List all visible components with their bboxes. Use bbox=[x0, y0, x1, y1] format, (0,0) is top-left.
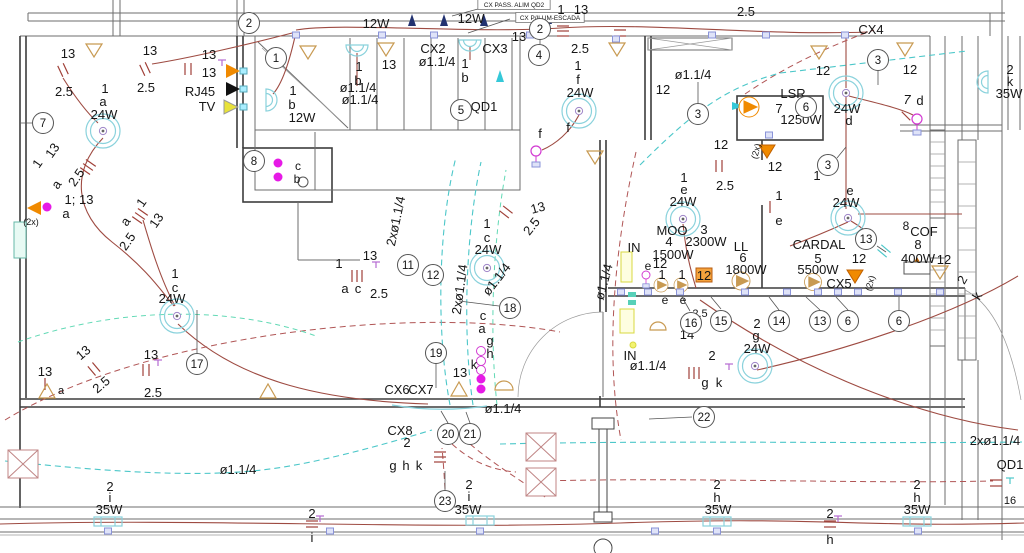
circuit-number-text: 21 bbox=[464, 429, 477, 441]
label: 13 bbox=[382, 57, 396, 72]
circuit-number: 14 bbox=[769, 311, 790, 332]
circuit-number-text: 16 bbox=[685, 318, 698, 330]
label: a bbox=[117, 214, 134, 229]
label: k bbox=[416, 458, 423, 473]
label: 7 bbox=[903, 92, 911, 107]
label: 12W bbox=[289, 110, 316, 125]
label: 2.5 bbox=[571, 41, 589, 56]
label: 35W bbox=[705, 502, 732, 517]
label: 2 bbox=[708, 348, 715, 363]
label: e bbox=[662, 293, 669, 307]
label: b bbox=[294, 172, 301, 186]
label: f bbox=[566, 120, 570, 135]
label: 2.5 bbox=[89, 373, 112, 396]
label: h bbox=[826, 532, 833, 547]
label: 2 bbox=[826, 506, 833, 521]
label: 24W bbox=[670, 194, 697, 209]
label: 24W bbox=[159, 291, 186, 306]
label: 2 bbox=[403, 435, 410, 450]
label: QD1 bbox=[471, 99, 498, 114]
magenta-point-icon bbox=[43, 159, 486, 394]
label: 35W bbox=[455, 502, 482, 517]
label: 24W bbox=[833, 195, 860, 210]
circuit-number: 17 bbox=[187, 354, 208, 375]
circuit-number-text: 2 bbox=[537, 24, 543, 36]
circuit-number-text: 19 bbox=[430, 348, 443, 360]
rj45-outlet bbox=[240, 86, 247, 92]
circuit-number: 11 bbox=[398, 255, 419, 276]
circuit-number: 16 bbox=[681, 313, 702, 334]
label: 12 bbox=[852, 251, 866, 266]
label: 12 bbox=[816, 63, 830, 78]
label: 13 bbox=[202, 47, 216, 62]
label: k bbox=[716, 375, 723, 390]
label: 13 bbox=[144, 347, 158, 362]
label: 12 bbox=[656, 82, 670, 97]
circuit-number-text: 18 bbox=[504, 303, 517, 315]
label: 400W bbox=[901, 251, 936, 266]
label: RJ45 bbox=[185, 84, 215, 99]
label: 1 bbox=[483, 216, 490, 231]
circuit-number-text: 6 bbox=[896, 316, 902, 328]
circuit-number-text: 5 bbox=[458, 105, 464, 117]
label: IN bbox=[628, 240, 641, 255]
circuit-number: 13 bbox=[810, 311, 831, 332]
label: CARDAL bbox=[793, 237, 846, 252]
circuit-number: 6 bbox=[796, 97, 817, 118]
circuit-number-text: 15 bbox=[715, 316, 728, 328]
label: TV bbox=[199, 99, 216, 114]
label: 13 bbox=[453, 365, 467, 380]
label: 24W bbox=[744, 341, 771, 356]
circuit-number: 13 bbox=[856, 229, 877, 250]
label: 13 bbox=[73, 342, 94, 363]
label: c bbox=[355, 281, 362, 296]
circuit-number: 7 bbox=[33, 113, 54, 134]
label: 2.5 bbox=[737, 4, 755, 19]
circuit-number: 3 bbox=[688, 104, 709, 125]
label: d bbox=[845, 113, 852, 128]
label: 35W bbox=[96, 502, 123, 517]
label: 13 bbox=[61, 46, 75, 61]
label: CX6 bbox=[384, 382, 409, 397]
label: 24W bbox=[475, 242, 502, 257]
label: 1 bbox=[171, 266, 178, 281]
circuit-number: 21 bbox=[460, 424, 481, 445]
label: e bbox=[775, 213, 782, 228]
circuit-number-text: 1 bbox=[273, 53, 279, 65]
label: i bbox=[311, 530, 314, 545]
label: ø1.1/4 bbox=[419, 54, 456, 69]
label: QD1 bbox=[997, 457, 1024, 472]
label: 2.5 bbox=[520, 214, 543, 237]
label: 13 bbox=[363, 248, 377, 263]
circuit-number: 15 bbox=[711, 311, 732, 332]
circuit-number: 2 bbox=[530, 19, 551, 40]
label: 1 bbox=[289, 83, 296, 98]
label: h bbox=[486, 346, 493, 361]
label: 13 bbox=[146, 210, 167, 230]
circuit-number: 6 bbox=[889, 311, 910, 332]
label: CX7 bbox=[408, 382, 433, 397]
label: CX3 bbox=[482, 41, 507, 56]
symbols bbox=[8, 12, 1014, 553]
label: 2.5 bbox=[55, 84, 73, 99]
label: ø1.1/4 bbox=[220, 462, 257, 477]
floor-plan-screenshot: CX PASS. ALIM QD2CX P/ILUM-ESCADA 2.5CX4… bbox=[0, 0, 1024, 553]
label: 2.5 bbox=[116, 230, 139, 253]
labels: 2.5CX412W12W11313132.52.51313RJ45TV1a24W… bbox=[23, 2, 1023, 547]
circuit-number-text: 3 bbox=[875, 55, 881, 67]
label: a bbox=[62, 206, 70, 221]
label: (2x) bbox=[863, 274, 877, 292]
circuit-number-text: 2 bbox=[246, 18, 252, 30]
circuit-number-text: 23 bbox=[439, 496, 452, 508]
label: 12 bbox=[697, 268, 711, 283]
circuit-number: 22 bbox=[694, 407, 715, 428]
label: 13 bbox=[38, 364, 52, 379]
label: g bbox=[701, 375, 708, 390]
label: 1 bbox=[775, 188, 782, 203]
label: (2x) bbox=[23, 217, 39, 227]
label: CX4 bbox=[858, 22, 883, 37]
label: 2xø1.1/4 bbox=[970, 433, 1021, 448]
label: 13 bbox=[202, 65, 216, 80]
label: 12 bbox=[714, 137, 728, 152]
label: 1 bbox=[678, 267, 685, 282]
circuit-number-text: 3 bbox=[695, 109, 701, 121]
label: 1 bbox=[461, 56, 468, 71]
circuit-number-text: 6 bbox=[845, 316, 851, 328]
circuit-number-text: 6 bbox=[803, 102, 809, 114]
label: 1 bbox=[29, 156, 45, 171]
label: 35W bbox=[996, 86, 1023, 101]
label: 13 bbox=[574, 2, 588, 17]
callout-box: CX PASS. ALIM QD2 bbox=[478, 0, 550, 10]
ceiling-light-icon bbox=[86, 76, 865, 383]
label: 1 bbox=[557, 2, 564, 17]
label: b bbox=[461, 70, 468, 85]
label: ø1.1/4 bbox=[485, 401, 522, 416]
circuit-number: 23 bbox=[435, 491, 456, 512]
label: 1; 13 bbox=[65, 192, 94, 207]
circuit-number: 2 bbox=[239, 13, 260, 34]
label: 12W bbox=[363, 16, 390, 31]
label: 24W bbox=[567, 85, 594, 100]
circuit-number: 4 bbox=[529, 45, 550, 66]
label: 1800W bbox=[725, 262, 767, 277]
circuit-number: 1 bbox=[266, 48, 287, 69]
label: 1 bbox=[335, 256, 342, 271]
circuit-number-text: 4 bbox=[536, 50, 543, 62]
label: 12 bbox=[768, 159, 782, 174]
label: ø1.1/4 bbox=[630, 358, 667, 373]
label: 1 bbox=[133, 195, 149, 210]
tel-outlet bbox=[240, 68, 247, 74]
label: 13 bbox=[512, 29, 526, 44]
label: e bbox=[680, 293, 687, 307]
label: (2x) bbox=[749, 142, 763, 160]
label: 35W bbox=[904, 502, 931, 517]
circuit-number-text: 12 bbox=[427, 270, 440, 282]
label: 5500W bbox=[797, 262, 839, 277]
label: 16 bbox=[1004, 495, 1016, 507]
circuit-number: 8 bbox=[244, 151, 265, 172]
label: 2.5 bbox=[370, 286, 388, 301]
callout-text: CX P/ILUM-ESCADA bbox=[520, 15, 581, 22]
circuit-number-text: 14 bbox=[773, 316, 786, 328]
circuit-number-text: 8 bbox=[251, 156, 257, 168]
label: 13 bbox=[143, 43, 157, 58]
label: a bbox=[58, 385, 65, 397]
label: d bbox=[916, 93, 923, 108]
circuit-number: 6 bbox=[838, 311, 859, 332]
neutral-tick-icon bbox=[154, 60, 1014, 522]
label: 1 bbox=[355, 59, 362, 74]
label: 13 bbox=[42, 140, 63, 160]
tv-outlet bbox=[240, 104, 247, 110]
label: 2.5 bbox=[716, 178, 734, 193]
circuit-number-text: 13 bbox=[860, 234, 873, 246]
label: 2xø1.1/4 bbox=[383, 195, 408, 248]
boxed-labels: CX PASS. ALIM QD2CX P/ILUM-ESCADA bbox=[478, 0, 584, 23]
label: 1 bbox=[658, 267, 665, 282]
circuit-number: 12 bbox=[423, 265, 444, 286]
column bbox=[592, 418, 614, 553]
label: 24W bbox=[91, 107, 118, 122]
label: 2.5 bbox=[137, 80, 155, 95]
label: 12 bbox=[903, 62, 917, 77]
label: f bbox=[538, 126, 542, 141]
circuit-number: 5 bbox=[451, 100, 472, 121]
label: 2 bbox=[954, 273, 971, 287]
circuit-number: 3 bbox=[868, 50, 889, 71]
label: 2 bbox=[308, 506, 315, 521]
label: a bbox=[341, 281, 349, 296]
label: ø1.1/4 bbox=[675, 67, 712, 82]
label: 2.5 bbox=[144, 385, 162, 400]
label: 12W bbox=[458, 11, 485, 26]
label: e bbox=[645, 259, 652, 273]
circuit-number: 18 bbox=[500, 298, 521, 319]
label: g bbox=[389, 458, 396, 473]
label: k bbox=[471, 357, 478, 372]
label: c bbox=[295, 159, 301, 173]
label: 1 bbox=[574, 58, 581, 73]
circuit-number-text: 22 bbox=[698, 412, 711, 424]
circuit-number: 20 bbox=[438, 424, 459, 445]
circuit-number: 19 bbox=[426, 343, 447, 364]
circuit-number-text: 20 bbox=[442, 429, 455, 441]
label: ø1.1/4 bbox=[342, 92, 379, 107]
circuit-number: 3 bbox=[818, 155, 839, 176]
callout-text: CX PASS. ALIM QD2 bbox=[484, 2, 545, 9]
circuit-number-text: 7 bbox=[40, 118, 46, 130]
floor-plan-canvas: CX PASS. ALIM QD2CX P/ILUM-ESCADA 2.5CX4… bbox=[0, 0, 1024, 553]
circuit-number-text: 3 bbox=[825, 160, 831, 172]
label: 8 bbox=[903, 219, 910, 233]
circuit-number-text: 17 bbox=[191, 359, 204, 371]
label: a bbox=[48, 177, 65, 192]
label: h bbox=[402, 458, 409, 473]
label: CX5 bbox=[826, 276, 851, 291]
label: 8 bbox=[914, 237, 921, 252]
label: 13 bbox=[529, 199, 547, 217]
label: a bbox=[478, 321, 486, 336]
circuit-number-text: 11 bbox=[402, 260, 414, 272]
circuit-number-text: 13 bbox=[814, 316, 827, 328]
label: 12 bbox=[937, 252, 951, 267]
